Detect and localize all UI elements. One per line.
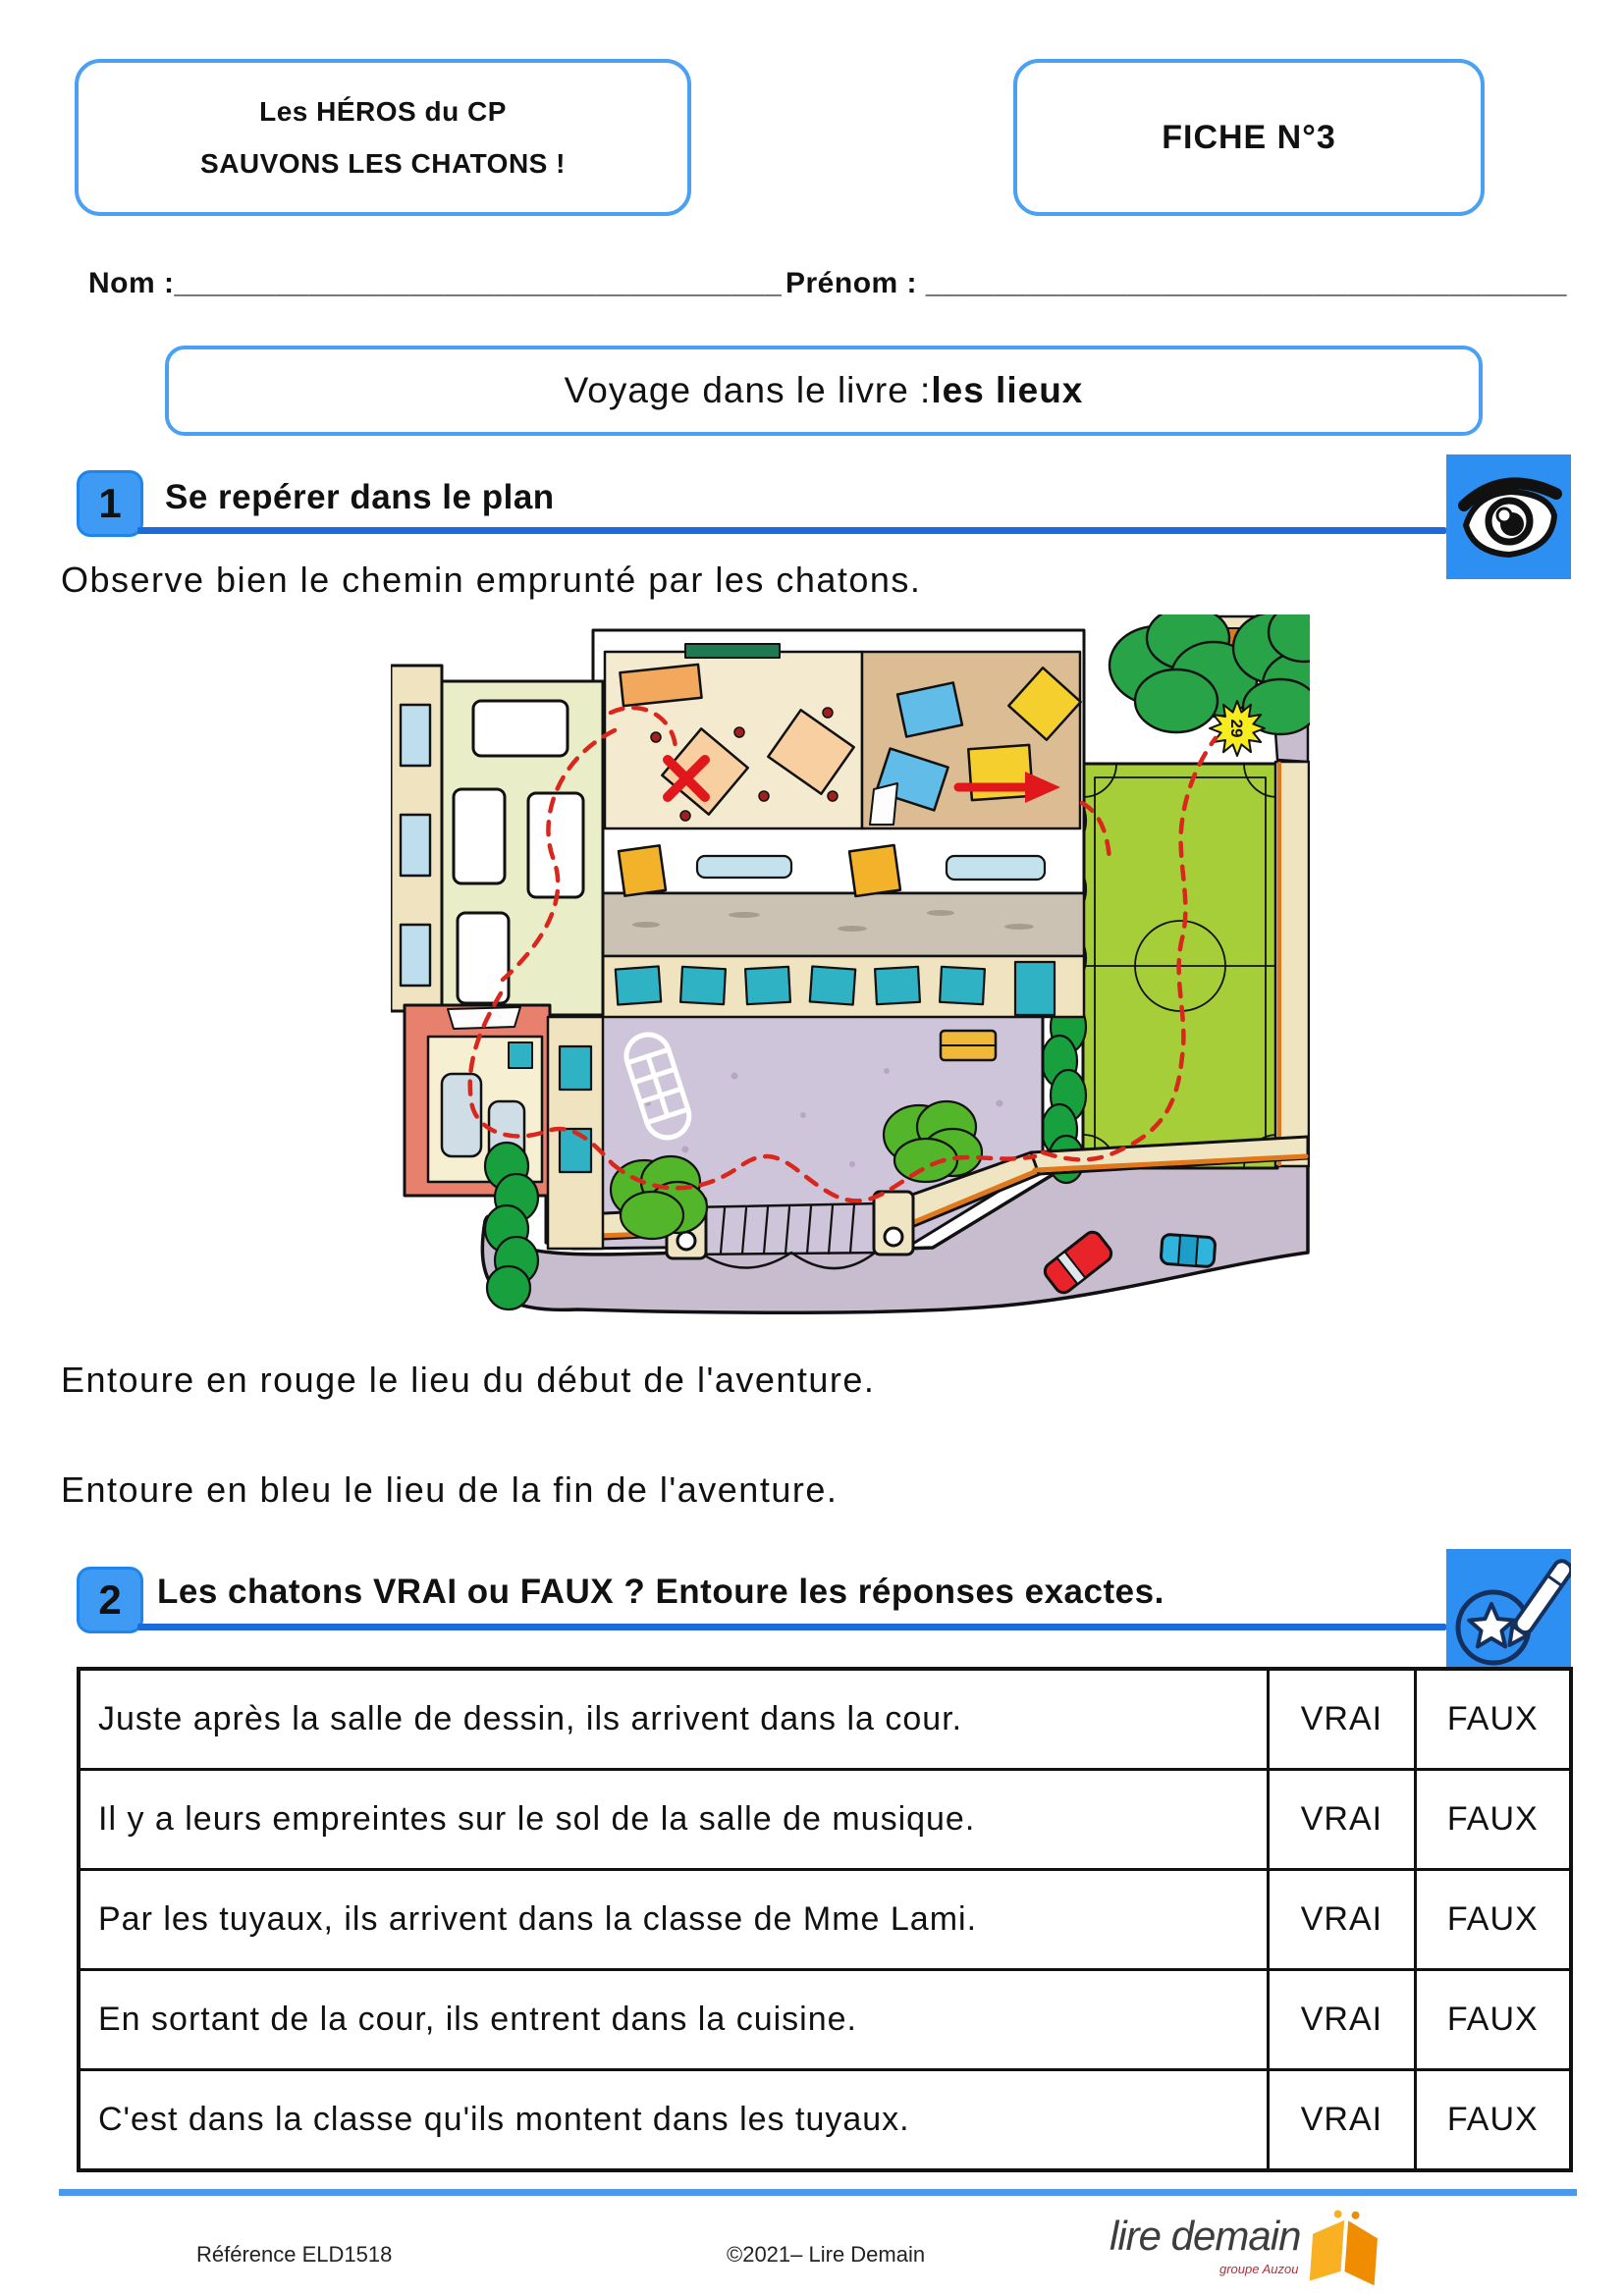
school-map: 29 <box>391 614 1310 1337</box>
worksheet-page: Les HÉROS du CP SAUVONS LES CHATONS ! FI… <box>0 0 1624 2296</box>
nom-label: Nom : <box>88 267 175 299</box>
table-row: Il y a leurs empreintes sur le sol de la… <box>81 1768 1569 1868</box>
section1-title: Se repérer dans le plan <box>165 478 555 517</box>
consigne-bleu: Entoure en bleu le lieu de la fin de l'a… <box>61 1469 838 1511</box>
school-map-illustration: 29 <box>391 614 1310 1337</box>
vrai-cell: VRAI <box>1267 2071 1413 2168</box>
table-row: Par les tuyaux, ils arrivent dans la cla… <box>81 1868 1569 1968</box>
faux-cell: FAUX <box>1414 1971 1569 2068</box>
bush <box>611 1156 707 1239</box>
blue-car <box>1161 1234 1216 1267</box>
worksheet-title-box: Voyage dans le livre : les lieux <box>165 346 1483 436</box>
write-icon-box <box>1446 1549 1571 1674</box>
section1-number: 1 <box>98 480 121 527</box>
section2-number-badge: 2 <box>77 1567 143 1633</box>
publisher-logo: lire demain groupe Auzou <box>1110 2207 1384 2295</box>
vrai-cell: VRAI <box>1267 1871 1413 1968</box>
logo-wordmark: lire demain <box>1110 2213 1300 2260</box>
prenom-write-line: ______________________________________ <box>926 267 1567 299</box>
nom-write-line: ____________________________________ <box>175 267 783 299</box>
star-page-number: 29 <box>1227 720 1246 738</box>
observe-icon-box <box>1446 454 1571 579</box>
faux-cell: FAUX <box>1414 1871 1569 1968</box>
fiche-number: FICHE N°3 <box>1162 119 1336 157</box>
statement-cell: En sortant de la cour, ils entrent dans … <box>81 1971 1267 2068</box>
footer-rule <box>59 2189 1577 2196</box>
footer-reference: Référence ELD1518 <box>196 2242 392 2268</box>
bench <box>941 1031 996 1060</box>
footer-copyright: ©2021– Lire Demain <box>727 2242 925 2268</box>
trees <box>1110 614 1310 734</box>
section2-rule <box>137 1624 1446 1630</box>
statement-cell: Il y a leurs empreintes sur le sol de la… <box>81 1771 1267 1868</box>
vrai-faux-table: Juste après la salle de dessin, ils arri… <box>77 1667 1573 2172</box>
series-line-2: SAUVONS LES CHATONS ! <box>200 137 566 189</box>
bush <box>884 1101 982 1182</box>
table-row: C'est dans la classe qu'ils montent dans… <box>81 2068 1569 2168</box>
statement-cell: C'est dans la classe qu'ils montent dans… <box>81 2071 1267 2168</box>
prenom-field: Prénom : _______________________________… <box>785 267 1567 300</box>
table-row: En sortant de la cour, ils entrent dans … <box>81 1968 1569 2068</box>
statement-cell: Juste après la salle de dessin, ils arri… <box>81 1671 1267 1768</box>
section1-instruction: Observe bien le chemin emprunté par les … <box>61 560 921 601</box>
eye-icon <box>1446 454 1571 579</box>
series-title-box: Les HÉROS du CP SAUVONS LES CHATONS ! <box>75 59 691 216</box>
section2-title: Les chatons VRAI ou FAUX ? Entoure les r… <box>157 1573 1164 1612</box>
table-row: Juste après la salle de dessin, ils arri… <box>81 1671 1569 1768</box>
fiche-number-box: FICHE N°3 <box>1013 59 1485 216</box>
vrai-cell: VRAI <box>1267 1771 1413 1868</box>
prenom-label: Prénom : <box>785 267 917 299</box>
section1-rule <box>137 527 1446 534</box>
vrai-cell: VRAI <box>1267 1971 1413 2068</box>
open-book-icon <box>1310 2207 1379 2295</box>
faux-cell: FAUX <box>1414 2071 1569 2168</box>
statement-cell: Par les tuyaux, ils arrivent dans la cla… <box>81 1871 1267 1968</box>
faux-cell: FAUX <box>1414 1771 1569 1868</box>
series-line-1: Les HÉROS du CP <box>259 85 507 137</box>
vrai-cell: VRAI <box>1267 1671 1413 1768</box>
consigne-rouge: Entoure en rouge le lieu du début de l'a… <box>61 1360 875 1401</box>
pencil-star-icon <box>1446 1549 1571 1674</box>
sports-field <box>1083 762 1309 1168</box>
nom-field: Nom :___________________________________… <box>88 267 782 300</box>
section1-number-badge: 1 <box>77 470 143 537</box>
logo-subtext: groupe Auzou <box>1219 2262 1298 2276</box>
section2-number: 2 <box>98 1576 121 1624</box>
faux-cell: FAUX <box>1414 1671 1569 1768</box>
worksheet-title-prefix: Voyage dans le livre : <box>565 370 932 411</box>
worksheet-title-bold: les lieux <box>931 370 1083 411</box>
